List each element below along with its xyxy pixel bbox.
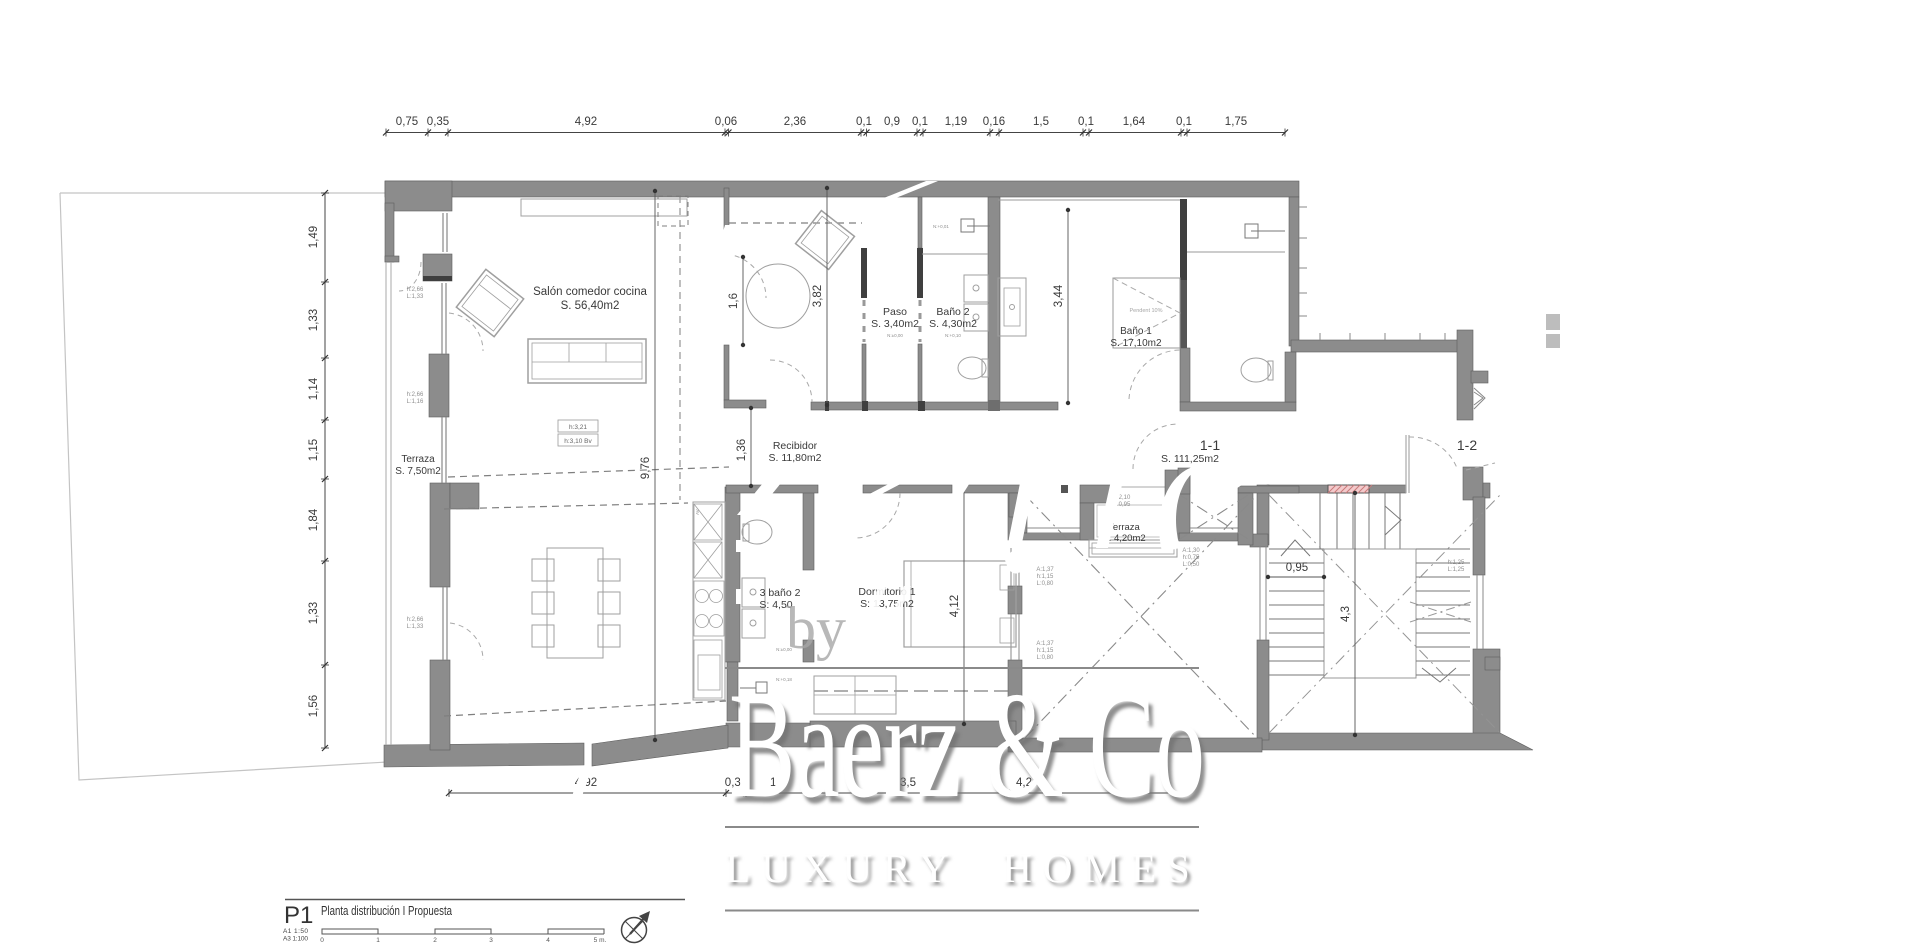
svg-text:1: 1 — [376, 937, 380, 944]
svg-text:h:3,21: h:3,21 — [569, 424, 587, 431]
svg-text:A3 1:100: A3 1:100 — [283, 936, 308, 943]
svg-text:LUXURY HOMES: LUXURY HOMES — [725, 845, 1201, 891]
svg-text:P1: P1 — [284, 902, 313, 929]
svg-text:3,82: 3,82 — [812, 285, 824, 307]
svg-text:9,76: 9,76 — [640, 457, 652, 479]
svg-text:S. 3,40m2: S. 3,40m2 — [871, 318, 919, 330]
svg-text:S. 111,25m2: S. 111,25m2 — [1161, 453, 1219, 465]
svg-text:1,56: 1,56 — [308, 695, 320, 717]
svg-text:1,33: 1,33 — [308, 309, 320, 331]
svg-text:1,19: 1,19 — [945, 116, 967, 128]
svg-text:0,75: 0,75 — [396, 116, 418, 128]
svg-text:A:1,30: A:1,30 — [1182, 548, 1200, 554]
svg-text:0,1: 0,1 — [856, 116, 872, 128]
svg-text:2: 2 — [433, 937, 437, 944]
svg-text:h:2,66: h:2,66 — [407, 617, 424, 623]
svg-text:by: by — [786, 595, 846, 661]
svg-text:1,14: 1,14 — [308, 377, 320, 400]
svg-text:Baerz & Co: Baerz & Co — [729, 661, 1205, 829]
svg-text:A:1,37: A:1,37 — [1036, 641, 1054, 647]
svg-text:4,12: 4,12 — [949, 595, 961, 617]
svg-text:S. 17,10m2: S. 17,10m2 — [1110, 338, 1162, 349]
svg-text:1,64: 1,64 — [1123, 116, 1146, 128]
svg-text:N:+0,10: N:+0,10 — [945, 333, 961, 338]
svg-text:3: 3 — [489, 937, 493, 944]
svg-text:1,15: 1,15 — [308, 439, 320, 461]
svg-text:Terraza: Terraza — [401, 454, 435, 465]
svg-text:L:1,33: L:1,33 — [407, 294, 424, 300]
svg-text:0,95: 0,95 — [1286, 562, 1308, 574]
svg-text:2,36: 2,36 — [784, 116, 806, 128]
svg-text:0,35: 0,35 — [427, 116, 449, 128]
svg-text:0,06: 0,06 — [715, 116, 737, 128]
svg-text:h:2,66: h:2,66 — [407, 287, 424, 293]
svg-text:4,92: 4,92 — [575, 116, 597, 128]
svg-text:1,75: 1,75 — [1225, 116, 1247, 128]
svg-text:A1 1:50: A1 1:50 — [283, 928, 308, 935]
svg-text:N:+0,01: N:+0,01 — [933, 224, 949, 229]
svg-text:4: 4 — [546, 937, 550, 944]
svg-text:L:0,50: L:0,50 — [1183, 562, 1200, 568]
svg-text:A:1,37: A:1,37 — [1036, 567, 1054, 573]
svg-text:Salón comedor cocina: Salón comedor cocina — [533, 286, 647, 298]
svg-text:3,44: 3,44 — [1053, 284, 1065, 307]
svg-text:0,16: 0,16 — [983, 116, 1005, 128]
svg-text:S. 4,30m2: S. 4,30m2 — [929, 318, 977, 330]
svg-text:h:1,25: h:1,25 — [1448, 560, 1465, 566]
svg-text:0,1: 0,1 — [912, 116, 928, 128]
svg-text:S. 7,50m2: S. 7,50m2 — [395, 466, 441, 477]
svg-text:L:0,80: L:0,80 — [1037, 581, 1054, 587]
svg-text:L:1,33: L:1,33 — [407, 624, 424, 630]
svg-text:1-2: 1-2 — [1457, 437, 1477, 453]
svg-text:0,1: 0,1 — [1078, 116, 1094, 128]
svg-text:1,33: 1,33 — [308, 602, 320, 624]
svg-text:1,6: 1,6 — [728, 293, 740, 309]
svg-text:L:1,25: L:1,25 — [1448, 567, 1465, 573]
svg-text:L:1,16: L:1,16 — [407, 399, 424, 405]
svg-text:Planta distribución I Propuest: Planta distribución I Propuesta — [321, 903, 453, 918]
svg-text:4,3: 4,3 — [1340, 606, 1352, 622]
svg-text:1-1: 1-1 — [1200, 437, 1220, 453]
svg-text:5 m.: 5 m. — [594, 937, 607, 944]
svg-text:0: 0 — [320, 937, 324, 944]
svg-text:1,5: 1,5 — [1033, 116, 1049, 128]
svg-text:Recibidor: Recibidor — [773, 440, 818, 452]
svg-text:h:0,75: h:0,75 — [1183, 555, 1200, 561]
svg-text:1,84: 1,84 — [308, 508, 320, 531]
svg-text:0,9: 0,9 — [884, 116, 900, 128]
svg-text:h:2,66: h:2,66 — [407, 392, 424, 398]
svg-text:1,36: 1,36 — [736, 439, 748, 461]
svg-text:1,49: 1,49 — [308, 226, 320, 248]
svg-text:h:1,15: h:1,15 — [1037, 648, 1054, 654]
svg-text:Pendent 10%: Pendent 10% — [1129, 308, 1162, 314]
svg-text:Paso: Paso — [883, 306, 907, 318]
svg-text:h:1,15: h:1,15 — [1037, 574, 1054, 580]
svg-text:Baño 1: Baño 1 — [1120, 326, 1152, 337]
svg-text:S. 56,40m2: S. 56,40m2 — [561, 300, 620, 312]
svg-text:N:±0,00: N:±0,00 — [887, 333, 903, 338]
svg-text:Baño 2: Baño 2 — [936, 306, 969, 318]
svg-text:0,1: 0,1 — [1176, 116, 1192, 128]
svg-text:S. 11,80m2: S. 11,80m2 — [769, 452, 822, 464]
svg-text:S: 13,75m2: S: 13,75m2 — [860, 598, 914, 610]
svg-text:h:3,10 Bv: h:3,10 Bv — [564, 438, 592, 445]
